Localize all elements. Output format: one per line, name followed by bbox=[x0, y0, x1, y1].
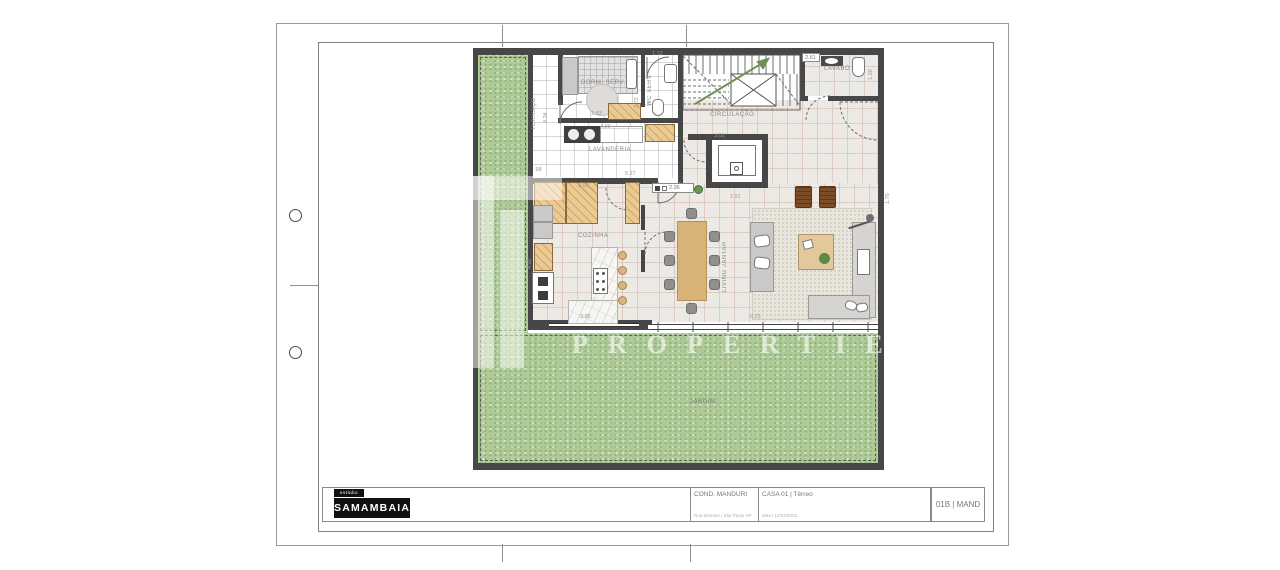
room-label-circulacao: CIRCULAÇÃO bbox=[710, 112, 754, 118]
room-label-dorm: DORM. SERV. bbox=[581, 80, 626, 86]
dim-lavanderia-left: .98 bbox=[534, 167, 542, 173]
room-label-terraco: TERRAÇO bbox=[531, 86, 537, 130]
room-label-wc: WC SERV. bbox=[647, 66, 653, 106]
sheet-code-box: 01B | MAND bbox=[931, 487, 985, 522]
door-tag-box: 2.36 bbox=[652, 183, 694, 193]
title-block: estúdio SAMAMBAIA COND. MANDURI Rua Mand… bbox=[322, 487, 931, 522]
watermark-logo-bar bbox=[466, 176, 494, 368]
sheet-sub: data | 12/04/2023 bbox=[762, 513, 797, 518]
dim-cozinha-b: 3.85 bbox=[580, 314, 591, 320]
title-block-divider bbox=[690, 488, 691, 521]
fold-tick-top-right bbox=[686, 25, 687, 47]
dim-dorm-h: 2.72 bbox=[634, 90, 640, 108]
sheet-code: 01B | MAND bbox=[936, 500, 980, 509]
watermark-logo-bar bbox=[500, 210, 524, 368]
room-label-living: LIVING JANTAR bbox=[722, 226, 728, 292]
watermark-text: PROPERTIES bbox=[572, 330, 937, 360]
fold-tick-bottom-left bbox=[502, 544, 503, 562]
watermark-logo-bar bbox=[466, 176, 562, 200]
fold-tick-top-left bbox=[502, 25, 503, 47]
project-name: COND. MANDURI bbox=[694, 491, 747, 498]
room-label-cozinha: COZINHA bbox=[578, 233, 609, 239]
project-sub: Rua Manduri | São Paulo SP bbox=[694, 513, 751, 518]
studio-logo: estúdio SAMAMBAIA bbox=[334, 489, 414, 521]
dim-lavanderia-w: 4.06 bbox=[600, 124, 611, 130]
dim-living-top: 2.91 bbox=[730, 194, 741, 200]
studio-name: SAMAMBAIA bbox=[334, 502, 410, 514]
dim-terraco-h: 4.34 bbox=[543, 103, 549, 123]
room-label-lavanderia: LAVANDERIA bbox=[589, 147, 631, 153]
dim-circ-w: 3.03 bbox=[714, 133, 725, 139]
studio-name-box: SAMAMBAIA bbox=[334, 499, 410, 518]
door-tag-value: 2.36 bbox=[669, 185, 680, 191]
punch-hole-bottom bbox=[289, 346, 302, 359]
dim-lavabo-w-tag: 2.61 bbox=[802, 53, 820, 62]
door-tag-icon-light bbox=[662, 186, 667, 191]
dim-lavabo-w: 2.61 bbox=[805, 55, 816, 61]
punch-hole-top bbox=[289, 209, 302, 222]
dim-lavabo-h: 1.20 bbox=[868, 62, 874, 80]
dim-living-b: 8.23 bbox=[750, 314, 761, 320]
fold-tick-bottom-right bbox=[690, 544, 691, 562]
studio-logo-tab: estúdio bbox=[334, 489, 364, 497]
dim-lavanderia-b: 5.27 bbox=[625, 171, 636, 177]
title-block-divider bbox=[758, 488, 759, 521]
room-label-lavabo: LAVABO bbox=[824, 66, 850, 72]
sheet-name: CASA 01 | Térreo bbox=[762, 491, 813, 498]
dim-cozinha-top: 3.85 bbox=[578, 183, 589, 189]
dim-wc-w: 1.12 bbox=[652, 51, 663, 57]
door-tag-icon-dark bbox=[655, 186, 660, 191]
room-label-jardim: JARDIM bbox=[690, 399, 715, 405]
dim-cozinha-h: 4.02 bbox=[527, 249, 533, 269]
fold-tick-left bbox=[290, 285, 318, 286]
drawing-sheet: TERRAÇO DORM. SERV. WC SERV. LAVANDERIA … bbox=[0, 0, 1280, 570]
studio-label: estúdio bbox=[340, 490, 358, 495]
dim-living-r: 1.76 bbox=[885, 186, 891, 204]
dim-dorm-w: 2.83 bbox=[591, 111, 602, 117]
